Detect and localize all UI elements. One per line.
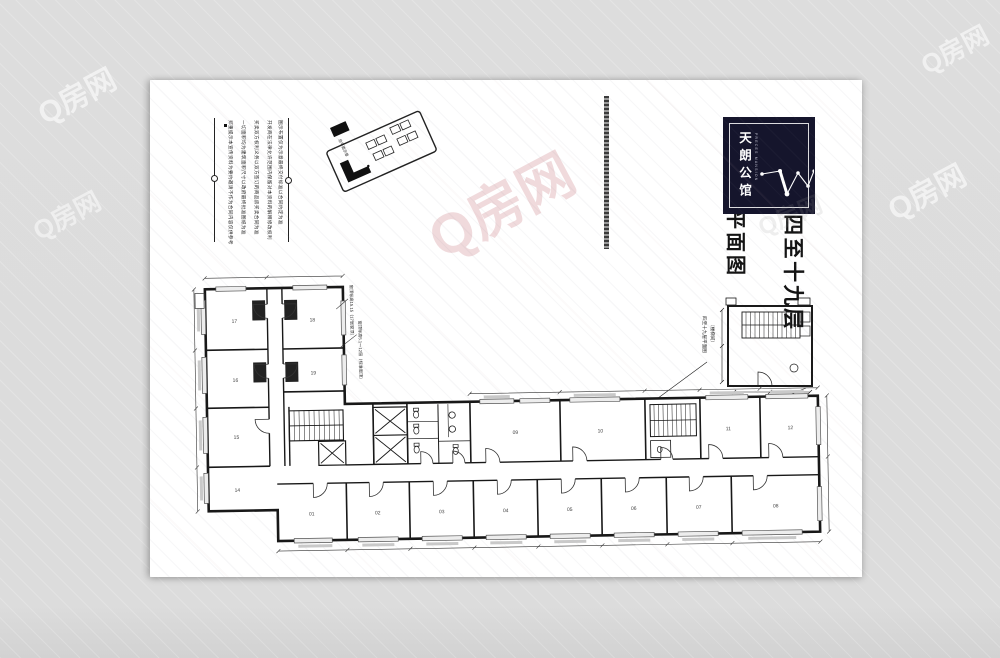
- room-label: 14: [235, 488, 241, 494]
- site-plan-label: 总平面示意: [338, 138, 350, 158]
- room-label: 10: [598, 428, 604, 434]
- exterior-shaft: [195, 293, 204, 308]
- room-label: 04: [503, 508, 509, 514]
- room-label: 11: [726, 426, 732, 432]
- room-label: 02: [375, 510, 381, 516]
- room-label: 09: [513, 430, 519, 436]
- site-plan-buildings: [364, 119, 419, 161]
- room-label: 19: [310, 370, 316, 376]
- key-plan-sublabel: （楼梯间）: [709, 322, 716, 345]
- photo-backdrop: Q房网 Q房网 Q房网 Q房网 C座四至十九层 平面图 天朗公馆 PRECES …: [0, 0, 1000, 658]
- room-label: 06: [631, 506, 637, 512]
- floorplan-artwork: 总平面示意: [0, 0, 1000, 658]
- site-plan: 总平面示意: [326, 111, 437, 193]
- room-label: 08: [773, 503, 779, 509]
- room-label: 15: [234, 435, 240, 441]
- key-plan-label: 四至十九层平面图: [701, 316, 708, 353]
- key-plan-stair: [742, 312, 800, 338]
- annotation-text: 窗顶标高5.1～12层（标准窗顶）: [356, 321, 364, 382]
- annotation-text: 窗顶标高15.15（17层窗顶）: [348, 285, 356, 338]
- room-label: 01: [309, 511, 315, 517]
- room-label: 16: [233, 378, 239, 384]
- room-label: 18: [310, 317, 316, 323]
- room-label: 05: [567, 507, 573, 513]
- room-label: 17: [232, 319, 238, 325]
- room-label: 12: [788, 425, 794, 431]
- site-plan-highlight-block: [340, 153, 371, 182]
- room-label: 07: [696, 505, 702, 511]
- main-floor-plan: 17 18 16 19 15 14 09 10 11 12 01 02 03 0…: [192, 265, 832, 554]
- room-label: 03: [439, 509, 445, 515]
